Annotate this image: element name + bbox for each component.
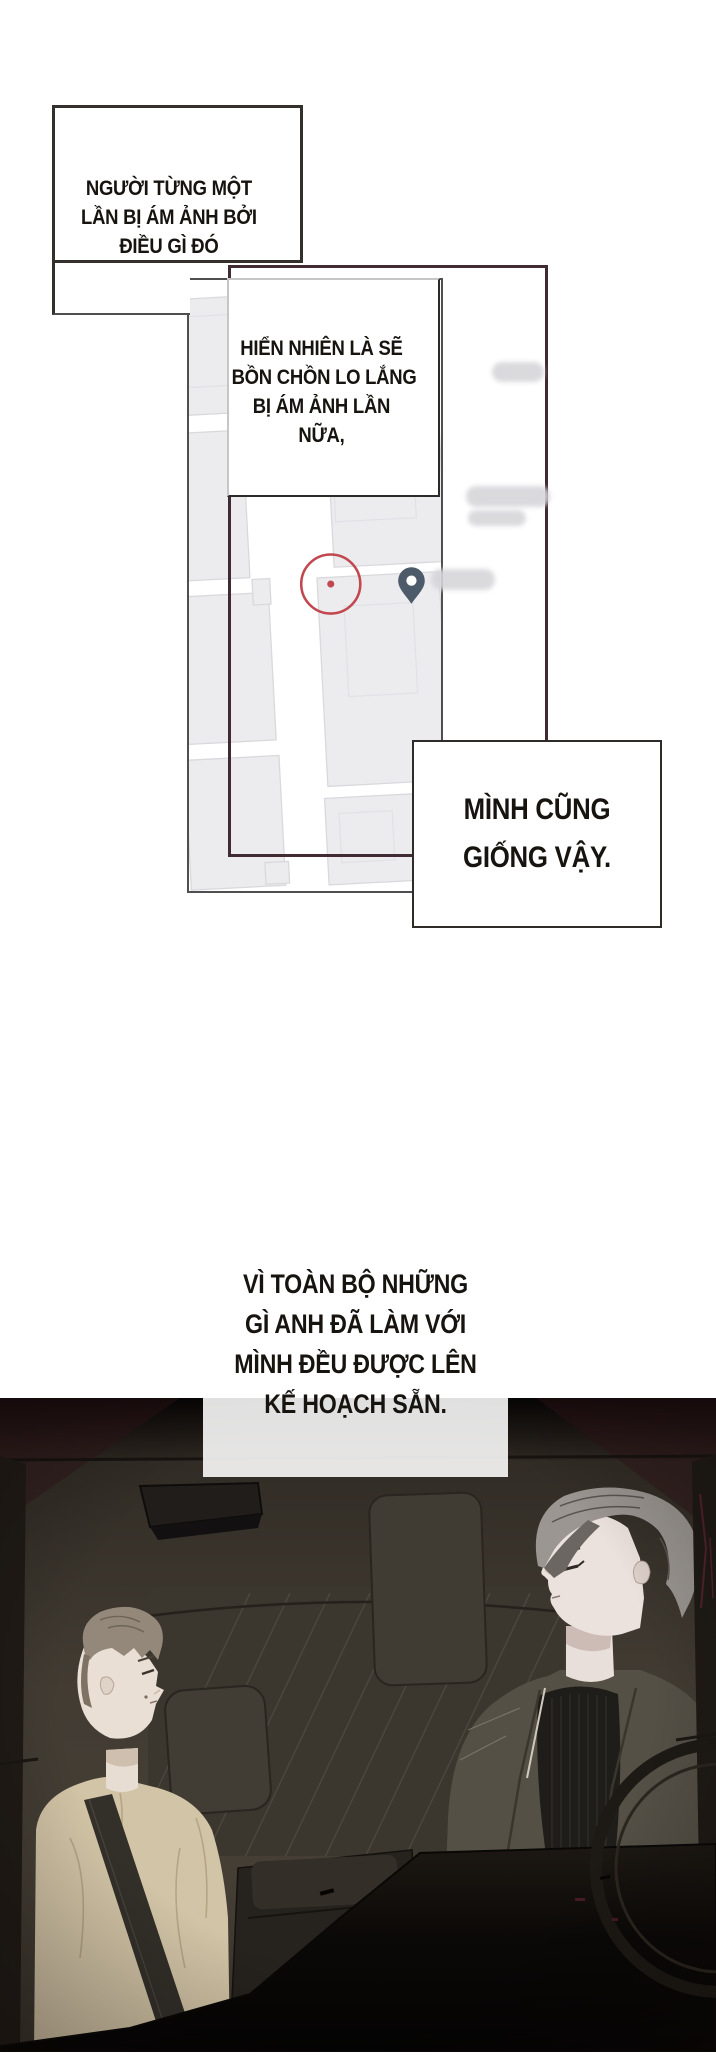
blurred-text-blob [468,510,526,526]
comic-page: HIỂN NHIÊN LÀ SẼ BỒN CHỒN LO LẮNG BỊ ÁM … [0,0,716,2059]
blurred-text-blob [492,362,544,382]
narration-box-2: HIỂN NHIÊN LÀ SẼ BỒN CHỒN LO LẮNG BỊ ÁM … [227,278,440,497]
panel-outline-extension [52,263,190,315]
car-scene-panel [0,1398,716,2052]
narration-text: MÌNH CŨNG GIỐNG VẬY. [431,786,643,882]
vignette [0,1398,716,2052]
blurred-text-blob [466,486,550,507]
narration-box-3: MÌNH CŨNG GIỐNG VẬY. [412,740,662,928]
narration-text: HIỂN NHIÊN LÀ SẼ BỒN CHỒN LO LẮNG BỊ ÁM … [232,334,412,450]
narration-box-1: NGƯỜI TỪNG MỘT LẦN BỊ ÁM ẢNH BỞI ĐIỀU GÌ… [52,105,303,263]
narration-text: VÌ TOÀN BỘ NHỮNG GÌ ANH ĐÃ LÀM VỚI MÌNH … [224,1264,486,1424]
narration-text: NGƯỜI TỪNG MỘT LẦN BỊ ÁM ẢNH BỞI ĐIỀU GÌ… [64,174,275,261]
narration-box-4: VÌ TOÀN BỘ NHỮNG GÌ ANH ĐÃ LÀM VỚI MÌNH … [203,1222,508,1477]
blurred-text-blob [431,569,495,590]
